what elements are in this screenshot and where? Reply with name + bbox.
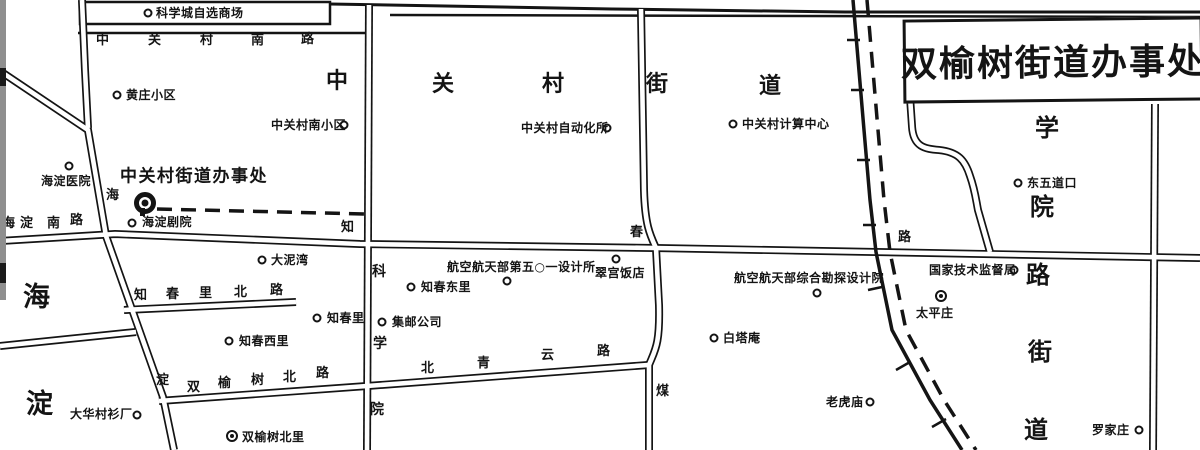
laohumiao-label: 老虎庙 [826,396,864,408]
beiqingyun-road-label-char-2: 云 [541,349,554,362]
zhongguancun-subdistrict-office-marker [134,192,156,214]
page-edge-strip [0,0,6,300]
huangzhuang-xiaoqu-label: 黄庄小区 [126,89,176,101]
taipingzhuang-label: 太平庄 [916,307,954,319]
zhichunli-north-road-label-char-2: 里 [199,287,212,300]
zhongguancun-south-road-label-char-0: 中 [96,34,109,47]
map-title-box: 双榆树街道办事处 [903,16,1200,103]
haidian-south-road-label-char-2: 南 [47,217,60,230]
haidian-area-label-char-1: 淀 [26,391,53,418]
dongwudaokou-marker [1014,179,1023,188]
aerospace-501-design-institute-marker [503,277,512,286]
shuangyushu-north-road-label-char-2: 树 [251,374,264,387]
zhichunli-north-road-label-char-1: 春 [166,288,179,301]
haidian-theater-label: 海淀剧院 [142,216,192,228]
taipingzhuang-marker [935,290,947,302]
map-title: 双榆树街道办事处 [901,32,1200,87]
laohumiao-marker [866,398,875,407]
beiqingyun-road-label-char-1: 青 [477,357,490,370]
zhichun-road-label-char-1: 春 [630,226,643,239]
shuangyushu-north-road-label-char-0: 双 [187,381,200,394]
jiyou-gongsi-label: 集邮公司 [392,316,442,328]
daniwan-marker [258,256,267,265]
mei-road-label-char-0: 煤 [656,385,669,398]
kexuecheng-store-marker [144,9,153,18]
zhongguancun-computing-center-marker [729,120,738,129]
zhongguancun-subdistrict-label-char-4: 道 [759,76,781,98]
aerospace-survey-design-institute-label: 航空航天部综合勘探设计院 [734,272,884,284]
keyuan-road-label-char-0: 科 [372,265,386,279]
baitaan-label: 白塔庵 [723,332,761,344]
zhongguancun-subdistrict-label-char-1: 关 [432,74,454,96]
zhichun-dongli-label: 知春东里 [421,281,471,293]
keyuan-road-label-char-2: 院 [370,403,384,417]
haidian-south-road-label-char-3: 路 [70,214,83,227]
aerospace-survey-design-institute-marker [813,289,822,298]
haidian-hospital-marker [65,162,74,171]
dongwudaokou-label: 东五道口 [1027,177,1077,189]
zhongguancun-south-xiaoqu-label: 中关村南小区 [271,119,346,131]
haidian-road-label-char-0: 海 [106,189,119,202]
zhongguancun-south-road-label-char-1: 关 [148,34,161,47]
zhongguancun-subdistrict-label-char-2: 村 [542,74,564,96]
zhongguancun-south-road-label-char-3: 南 [251,34,264,47]
state-technical-supervision-bureau-label: 国家技术监督局 [929,264,1017,276]
luojiazhuang-label: 罗家庄 [1092,424,1130,436]
daniwan-label: 大泥湾 [271,254,309,266]
xueyuanlu-subdistrict-label-char-3: 街 [1028,340,1052,364]
aerospace-501-design-institute-label: 航空航天部第五○一设计所 [447,261,595,273]
zhichun-xili-label: 知春西里 [239,335,289,347]
huangzhuang-xiaoqu-marker [113,91,122,100]
haidian-theater-marker [128,219,137,228]
zhichunli-marker [313,314,322,323]
haidian-hospital-label: 海淀医院 [41,175,91,187]
cuigong-hotel-marker [612,255,621,264]
zhongguancun-computing-center-label: 中关村计算中心 [742,118,830,130]
zhichunli-north-road-label-char-0: 知 [134,289,147,302]
map-canvas: 中关村街道学院路街道海淀中关村南路海淀南路知春路知春里北路双榆树北路北青云路科学… [0,0,1200,450]
zhichun-road-label-char-0: 知 [341,221,354,234]
dahua-shirt-factory-label: 大华村衫厂 [70,408,133,420]
xueyuanlu-subdistrict-label-char-1: 院 [1030,195,1054,219]
baitaan-marker [710,334,719,343]
xueyuanlu-subdistrict-label-char-2: 路 [1026,263,1050,287]
zhichunli-north-road-label-char-4: 路 [270,284,283,297]
zhichunli-label: 知春里 [327,312,365,324]
zhongguancun-automation-institute-label: 中关村自动化所 [521,122,609,134]
zhongguancun-subdistrict-office-label: 中关村街道办事处 [120,169,268,186]
zhichun-dongli-marker [407,283,416,292]
edge-tick-0 [0,68,6,86]
zhongguancun-subdistrict-office-marker-dot [142,200,149,207]
zhongguancun-subdistrict-label-char-3: 街 [646,74,668,96]
zhichun-xili-marker [225,337,234,346]
shuangyushu-beili-marker [226,430,238,442]
xueyuanlu-subdistrict-label-char-0: 学 [1035,116,1059,140]
haidian-south-road-label-char-1: 淀 [20,217,33,230]
shuangyushu-north-road-label-char-1: 榆 [218,377,231,390]
shuangyushu-beili-marker-dot [230,434,234,438]
shuangyushu-beili-label: 双榆树北里 [242,431,305,443]
taipingzhuang-marker-dot [939,294,943,298]
zhongguancun-south-road-label-char-2: 村 [200,34,213,47]
edge-tick-1 [0,263,6,283]
zhongguancun-subdistrict-label-char-0: 中 [326,71,348,93]
zhongguancun-south-road-label-char-4: 路 [301,33,314,46]
haidian-area-label-char-0: 海 [23,284,50,311]
luojiazhuang-marker [1135,426,1144,435]
dahua-shirt-factory-marker [133,411,142,420]
shuangyushu-north-road-label-char-4: 路 [316,367,329,380]
kexuecheng-store-label: 科学城自选商场 [156,7,244,19]
shuangyushu-north-road-label-char-3: 北 [283,371,296,384]
cuigong-hotel-label: 翠宫饭店 [595,267,645,279]
beiqingyun-road-label-char-3: 路 [597,345,610,358]
zhichunli-north-road-label-char-3: 北 [234,286,247,299]
beiqingyun-road-label-char-0: 北 [421,362,434,375]
xueyuanlu-subdistrict-label-char-4: 道 [1024,418,1048,442]
zhichun-road-label-char-2: 路 [898,231,911,244]
haidian-road-label-char-1: 淀 [156,374,169,387]
jiyou-gongsi-marker [378,318,387,327]
keyuan-road-label-char-1: 学 [373,337,387,351]
